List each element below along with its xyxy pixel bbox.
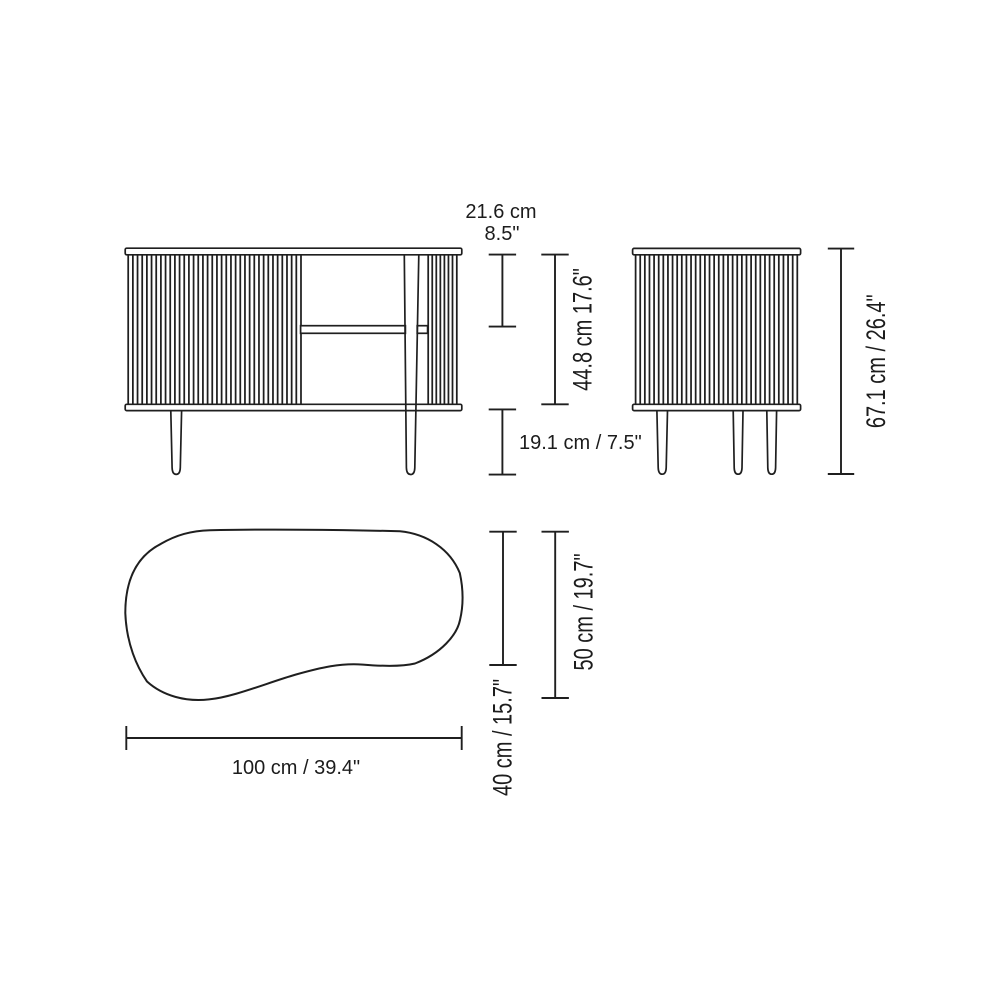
svg-text:50 cm / 19.7": 50 cm / 19.7" <box>570 553 600 670</box>
svg-text:44.8 cm 17.6": 44.8 cm 17.6" <box>569 268 599 391</box>
svg-text:67.1 cm / 26.4": 67.1 cm / 26.4" <box>862 294 892 428</box>
svg-text:40 cm / 15.7": 40 cm / 15.7" <box>489 679 519 796</box>
svg-text:8.5": 8.5" <box>485 223 520 245</box>
svg-text:21.6 cm: 21.6 cm <box>465 201 536 223</box>
svg-text:19.1 cm / 7.5": 19.1 cm / 7.5" <box>519 432 642 454</box>
svg-text:100 cm / 39.4": 100 cm / 39.4" <box>232 757 360 779</box>
